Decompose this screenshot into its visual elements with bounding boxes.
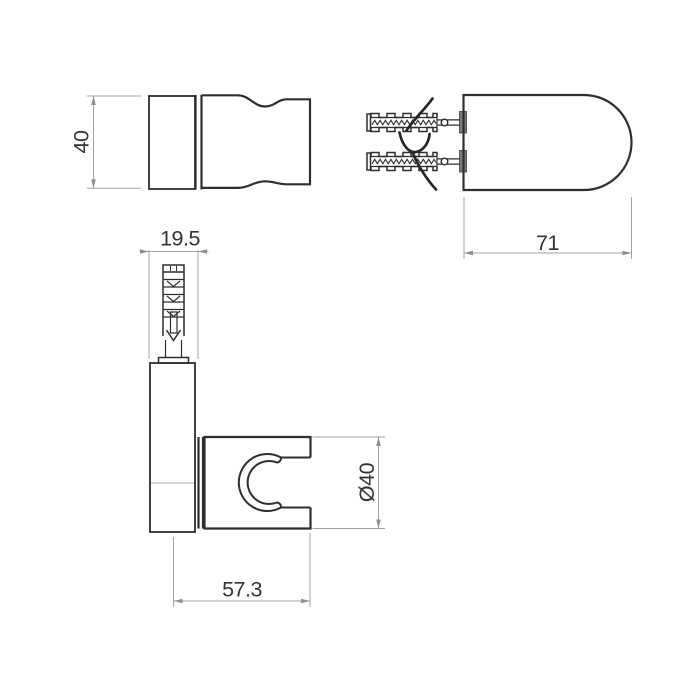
clip-inner-arc bbox=[248, 458, 281, 508]
dim-label-mount-length: 57.3 bbox=[222, 578, 262, 602]
wall-plug-vertical bbox=[159, 265, 189, 363]
bottom-view bbox=[150, 265, 311, 532]
dim-label-height: 40 bbox=[70, 130, 94, 153]
holder-body-bottom bbox=[205, 437, 311, 529]
dim-length-57-3: 57.3 bbox=[174, 533, 311, 607]
dim-label-depth: 71 bbox=[536, 231, 559, 255]
dim-diameter-40: Ø40 bbox=[313, 437, 386, 529]
arrowhead-left bbox=[174, 599, 183, 604]
holder-body-profile bbox=[202, 95, 311, 188]
interface-lines bbox=[199, 437, 204, 529]
arrowhead-up bbox=[91, 96, 96, 105]
wall-plate-front bbox=[149, 96, 195, 189]
anchor-wing-middle bbox=[400, 133, 430, 153]
arrowhead-left bbox=[464, 251, 473, 256]
arrowhead-down bbox=[91, 179, 96, 188]
dim-label-plug-width: 19.5 bbox=[160, 227, 200, 251]
arrowhead-inward-right bbox=[140, 249, 149, 254]
front-view bbox=[149, 95, 310, 190]
wall-plate-side bbox=[150, 363, 195, 532]
plate-body-interface-lines bbox=[196, 95, 202, 190]
arrowhead-right bbox=[301, 599, 310, 604]
drawing-canvas: 40 71 bbox=[0, 0, 700, 700]
arrowhead-down bbox=[376, 520, 381, 529]
dim-height-40: 40 bbox=[70, 96, 142, 188]
side-view bbox=[367, 95, 632, 190]
arrowhead-up bbox=[376, 437, 381, 446]
dim-label-diameter: Ø40 bbox=[355, 462, 379, 502]
dim-depth-71: 71 bbox=[464, 197, 632, 259]
arrowhead-right bbox=[623, 251, 632, 256]
holder-body-side bbox=[464, 95, 632, 190]
technical-drawing: 40 71 bbox=[0, 0, 700, 700]
